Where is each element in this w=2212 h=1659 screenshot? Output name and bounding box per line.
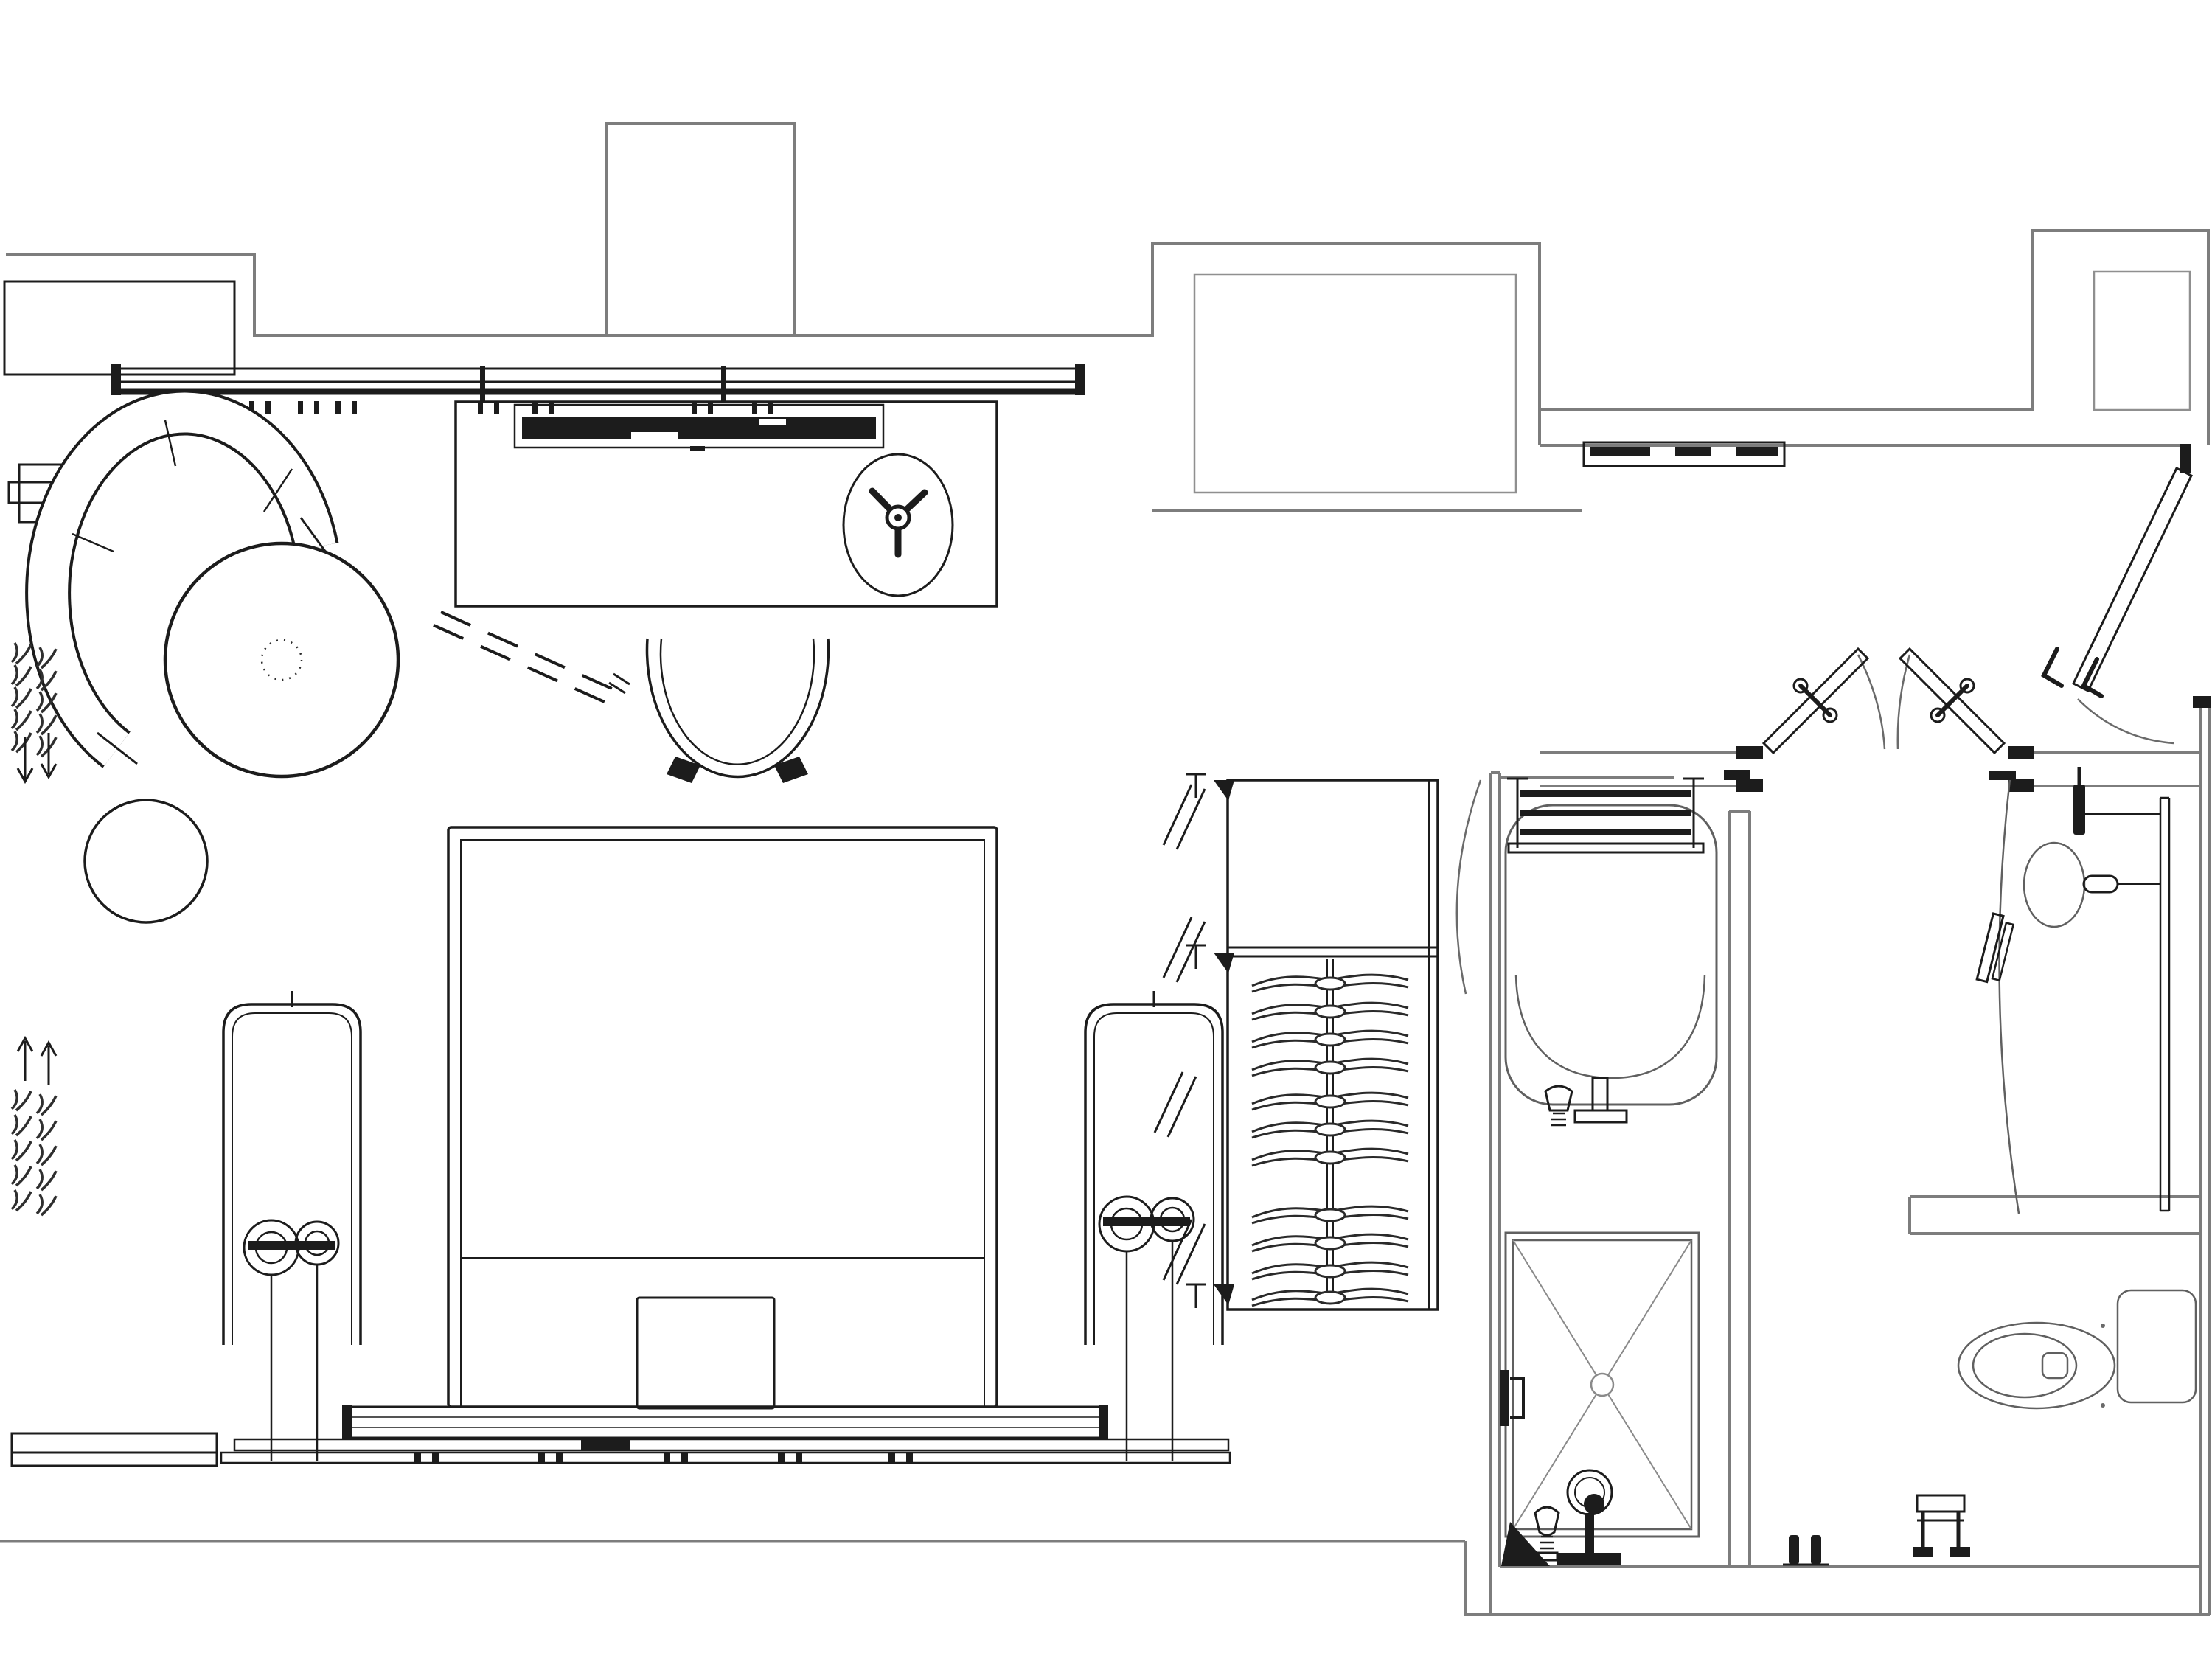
curtain-squiggle xyxy=(37,1144,56,1165)
bed-foot-tick xyxy=(888,1453,913,1462)
curtain-squiggle xyxy=(12,1115,31,1135)
headboard xyxy=(342,1405,1108,1450)
clothes-hanger xyxy=(1252,1149,1408,1166)
curtain-squiggle xyxy=(37,1194,56,1215)
wall-sconce xyxy=(2073,767,2160,835)
shaft-inner xyxy=(2094,271,2190,410)
outer-bottom-wall xyxy=(1465,1541,2210,1615)
curtain-squiggle xyxy=(37,736,56,757)
entry-door-handles xyxy=(2044,649,2101,696)
bed-foot-tick xyxy=(538,1453,563,1462)
nightstand-left xyxy=(223,991,361,1461)
mullion-tick-pair xyxy=(335,401,357,414)
window-seat-box xyxy=(4,282,234,375)
alcove-inner xyxy=(1194,274,1516,493)
curtain-squiggle xyxy=(12,687,31,708)
curtain-squiggle xyxy=(37,1094,56,1115)
clothes-hanger xyxy=(1252,975,1408,992)
wall-tv xyxy=(515,405,883,451)
tub-faucet xyxy=(1545,1078,1627,1125)
closet xyxy=(1155,774,1438,1310)
curtain-squiggle xyxy=(12,643,31,664)
right-wall xyxy=(2201,698,2210,1615)
vestibule-south-wall xyxy=(1540,752,2201,786)
robe-hooks xyxy=(1783,1535,1829,1565)
mirror-strip xyxy=(2160,798,2169,1211)
curtain-arrow-up xyxy=(41,1043,56,1085)
twin-lamps xyxy=(244,1220,338,1461)
door-swing-arc xyxy=(1858,655,1910,749)
bathroom-door-swing-arc xyxy=(1457,780,1481,994)
floor-plan-page xyxy=(0,0,2212,1659)
bed-runner xyxy=(637,1298,774,1408)
curtain-squiggle xyxy=(12,731,31,752)
bed xyxy=(221,827,1230,1463)
shower-mixer-knob xyxy=(1535,1507,1559,1560)
flush-outlet xyxy=(2042,1353,2067,1378)
tubroom-jamb-cap xyxy=(1724,770,1750,780)
twin-lamps xyxy=(1099,1197,1194,1461)
curtain-squiggle xyxy=(12,1190,31,1211)
curtain-squiggle xyxy=(37,714,56,734)
entry-door-leaf xyxy=(2073,468,2191,691)
fan-symbol xyxy=(844,454,953,596)
curtain-squiggle xyxy=(12,1165,31,1186)
toilet-tank xyxy=(2118,1290,2196,1402)
door-leaf-left xyxy=(1764,649,1868,753)
curtain-squiggle xyxy=(37,1169,56,1190)
door-jamb xyxy=(1736,779,1763,792)
round-ottoman-table xyxy=(165,543,398,776)
wall-stub-cap xyxy=(1989,771,2016,780)
mullion-tick-pair xyxy=(298,401,319,414)
towel-ladder-rack xyxy=(1507,779,1704,852)
wall-faucet xyxy=(2084,876,2160,892)
curtain-squiggle xyxy=(37,1119,56,1140)
clothes-hanger xyxy=(1252,1003,1408,1020)
vestibule xyxy=(1584,442,2191,792)
clothes-hanger xyxy=(1252,1031,1408,1048)
curtain-squiggle xyxy=(12,665,31,686)
bed-foot-tick xyxy=(664,1453,688,1462)
shower-drain xyxy=(1591,1374,1613,1396)
bathtub xyxy=(1506,805,1717,1105)
toilet-half-wall xyxy=(1910,1197,2201,1234)
entry-jamb-cap xyxy=(2180,444,2191,473)
mullion-bar xyxy=(721,366,726,401)
lounge-area xyxy=(9,413,398,1215)
clothes-hanger xyxy=(1252,1289,1408,1306)
mattress xyxy=(448,827,997,1407)
toilet-paper-stand xyxy=(1913,1495,1970,1557)
bed-foot-tick xyxy=(778,1453,802,1462)
window-band-cap-right xyxy=(1075,364,1085,395)
bench xyxy=(12,1433,217,1466)
window-band-cap-left xyxy=(111,364,121,395)
entry-door xyxy=(2044,468,2191,743)
vanity xyxy=(1977,767,2169,1214)
round-stool xyxy=(85,800,207,922)
bed-base xyxy=(221,1439,1230,1463)
floor-plan-drawing xyxy=(0,0,2212,1659)
entry-swing-arc xyxy=(2078,699,2174,743)
bed-foot-tick xyxy=(414,1453,439,1462)
walls xyxy=(0,124,2211,1615)
top-exterior-step xyxy=(606,124,795,335)
curtain-arrow-down xyxy=(18,737,32,782)
bathroom-left-wall xyxy=(1491,773,1500,1615)
towel-rail xyxy=(1977,914,2014,985)
corridor-upper-wall xyxy=(1540,230,2208,445)
toilet xyxy=(1958,1290,2196,1408)
door-jamb xyxy=(2008,746,2034,759)
clothes-hanger xyxy=(1252,1093,1408,1110)
door-jamb xyxy=(1736,746,1763,759)
nightstand-right xyxy=(1085,991,1222,1461)
chair-foot xyxy=(774,757,808,783)
hinge-bracket xyxy=(1214,953,1234,973)
curtain-squiggle xyxy=(12,1140,31,1161)
folding-rack-dashed xyxy=(434,612,630,702)
bed-area xyxy=(12,827,1230,1466)
curtain-symbol-bottom xyxy=(12,1038,56,1215)
tubroom-right-wall xyxy=(1729,811,1750,1567)
shower xyxy=(1500,1233,1699,1566)
curtain-arrow-up xyxy=(18,1038,32,1081)
hinge-bracket xyxy=(1214,780,1234,801)
chair-foot xyxy=(667,757,700,783)
entry-jamb-lower-cap xyxy=(2193,696,2211,708)
clothes-hanger xyxy=(1252,1059,1408,1076)
clothes-hanger xyxy=(1252,1262,1408,1279)
sink-basin xyxy=(2024,843,2084,927)
bathroom xyxy=(1500,767,2196,1566)
clothes-hanger xyxy=(1252,1206,1408,1223)
desk-chair xyxy=(647,639,828,783)
desk-area xyxy=(434,402,997,783)
closet-hangers xyxy=(1252,975,1408,1306)
window-band xyxy=(119,369,1078,382)
shower-head xyxy=(1557,1470,1621,1565)
mullion-bar xyxy=(480,366,485,401)
door-leaf-right xyxy=(1900,649,2004,753)
curtain-squiggle xyxy=(12,1090,31,1110)
counter-front-curve xyxy=(2000,779,2019,1214)
shelf-divider xyxy=(1228,947,1438,956)
curtain-squiggle xyxy=(12,709,31,730)
shower-door-handle xyxy=(1500,1370,1523,1426)
clothes-hanger xyxy=(1252,1234,1408,1251)
clothes-hanger xyxy=(1252,1121,1408,1138)
double-doors xyxy=(1736,649,2034,792)
hinge-bracket xyxy=(1214,1284,1234,1305)
door-jamb xyxy=(2008,779,2034,792)
